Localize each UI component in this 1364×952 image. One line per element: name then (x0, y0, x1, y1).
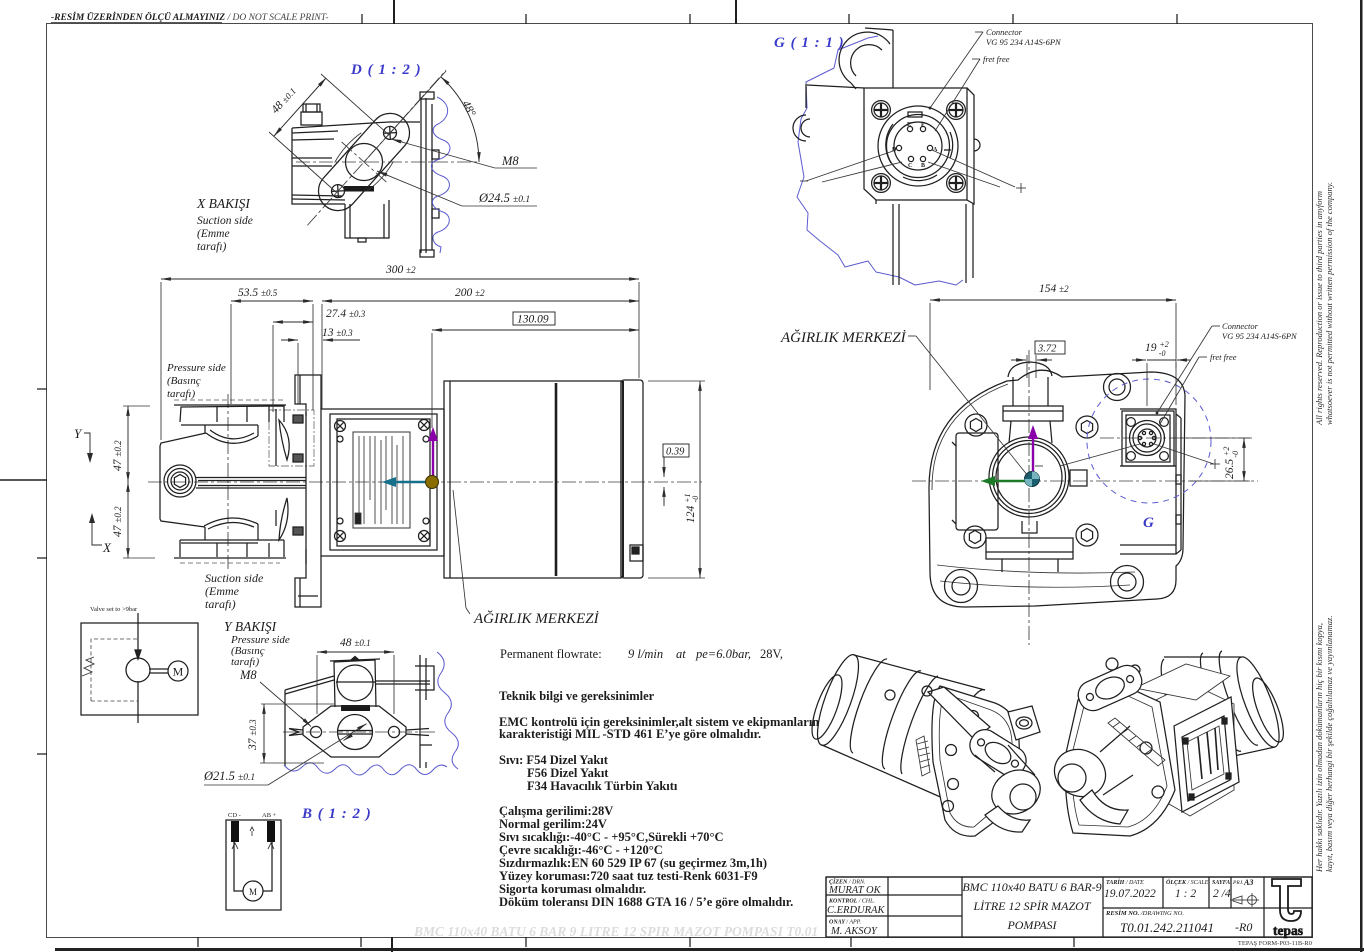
svg-text:47 ±0.2: 47 ±0.2 (112, 506, 124, 537)
svg-text:karakteristiği MIL -STD 461 E’: karakteristiği MIL -STD 461 E’ye göre ol… (499, 727, 761, 741)
svg-text:Y BAKIŞI: Y BAKIŞI (224, 619, 278, 634)
svg-text:M. AKSOY: M. AKSOY (830, 926, 878, 937)
svg-text:SAYFA: SAYFA (1212, 880, 1230, 886)
svg-text:M8: M8 (239, 668, 257, 682)
svg-text:POMPASI: POMPASI (1006, 918, 1057, 932)
svg-text:ONAY / APP.: ONAY / APP. (829, 920, 861, 926)
svg-text:BMC 110x40 BATU 6 BAR-9: BMC 110x40 BATU 6 BAR-9 (962, 880, 1101, 894)
svg-text:fret free: fret free (1210, 352, 1237, 362)
svg-text:(Emme: (Emme (205, 584, 240, 598)
svg-text:300 ±2: 300 ±2 (385, 264, 416, 276)
svg-text:TEPAŞ FORM-P03-11B-R0: TEPAŞ FORM-P03-11B-R0 (1238, 940, 1312, 947)
svg-text:3.72: 3.72 (1037, 344, 1057, 355)
svg-text:F: F (921, 122, 925, 128)
svg-text:A3: A3 (1243, 878, 1253, 887)
svg-text:28V,: 28V, (760, 647, 783, 661)
svg-text:AĞIRLIK MERKEZİ: AĞIRLIK MERKEZİ (473, 610, 600, 627)
svg-text:C.ERDURAK: C.ERDURAK (827, 905, 885, 916)
svg-text:Normal gerilim:24V: Normal gerilim:24V (499, 817, 607, 831)
svg-text:kayıt, basım veya diğer herhan: kayıt, basım veya diğer herhangi bir şek… (1324, 616, 1334, 872)
svg-text:TARİH / DATE: TARİH / DATE (1106, 878, 1144, 886)
svg-text:27.4 ±0.3: 27.4 ±0.3 (326, 308, 366, 320)
svg-text:13 ±0.3: 13 ±0.3 (322, 327, 353, 339)
svg-text:(Emme: (Emme (197, 228, 230, 240)
svg-text:M: M (173, 665, 184, 679)
svg-text:Valve set to >9bar: Valve set to >9bar (90, 606, 138, 613)
svg-text:at: at (676, 647, 686, 661)
svg-text:tarafı): tarafı) (197, 241, 227, 253)
svg-text:(Basınç: (Basınç (167, 375, 201, 387)
svg-text:D ( 1 : 2 ): D ( 1 : 2 ) (350, 62, 422, 78)
svg-text:Connector: Connector (986, 27, 1023, 37)
svg-text:Çalışma gerilimi:28V: Çalışma gerilimi:28V (499, 804, 613, 818)
svg-text:130.09: 130.09 (517, 314, 549, 326)
svg-text:Permanent flowrate:: Permanent flowrate: (500, 647, 602, 661)
svg-text:37 ±0.3: 37 ±0.3 (247, 719, 259, 751)
svg-text:E: E (907, 122, 911, 128)
svg-text:T0.01.242.211041: T0.01.242.211041 (1120, 920, 1214, 935)
svg-text:VG 95 234 A14S-6PN: VG 95 234 A14S-6PN (1222, 331, 1298, 341)
svg-text:Sızdırmazlık:EN 60 529 IP 67 (: Sızdırmazlık:EN 60 529 IP 67 (su geçirme… (499, 856, 767, 870)
svg-text:ÖLÇEK / SCALE: ÖLÇEK / SCALE (1166, 879, 1209, 886)
svg-text:47 ±0.2: 47 ±0.2 (112, 440, 124, 471)
svg-text:tepas: tepas (1273, 923, 1303, 938)
svg-text:19.07.2022: 19.07.2022 (1104, 888, 1156, 900)
svg-text:whatsoever is not permitted wi: whatsoever is not permitted without writ… (1324, 182, 1334, 425)
svg-text:B ( 1 : 2 ): B ( 1 : 2 ) (301, 806, 372, 822)
svg-text:VG 95 234 A14S-6PN: VG 95 234 A14S-6PN (986, 37, 1062, 47)
svg-text:G: G (1143, 515, 1154, 531)
svg-text:BMC 110x40 BATU 6 BAR 9 LITRE: BMC 110x40 BATU 6 BAR 9 LITRE 12 SPIR MA… (413, 924, 818, 939)
svg-text:-R0: -R0 (1235, 920, 1252, 934)
svg-text:PRJ.: PRJ. (1232, 880, 1244, 886)
svg-text:X BAKIŞI: X BAKIŞI (196, 196, 251, 211)
svg-text:Pressure side: Pressure side (166, 362, 226, 374)
svg-text:M: M (249, 887, 257, 897)
svg-text:F34 Havacılık Türbin Yakıtı: F34 Havacılık Türbin Yakıtı (527, 779, 678, 793)
svg-text:CD -: CD - (228, 812, 241, 819)
svg-text:X: X (102, 540, 112, 555)
svg-text:D: D (892, 147, 897, 153)
svg-text:154 ±2: 154 ±2 (1039, 283, 1069, 295)
svg-text:Suction side: Suction side (197, 215, 253, 227)
svg-text:pe=6.0bar,: pe=6.0bar, (695, 647, 751, 661)
svg-text:Teknik bilgi ve gereksinimler: Teknik bilgi ve gereksinimler (499, 689, 655, 703)
svg-text:C: C (908, 163, 912, 169)
svg-text:Suction side: Suction side (205, 571, 264, 585)
svg-text:200 ±2: 200 ±2 (455, 287, 485, 299)
svg-text:Çevre sıcaklığı:-46°C - +120: Çevre sıcaklığı:-46°C - +120°C (499, 843, 663, 857)
svg-text:AB +: AB + (262, 812, 277, 819)
svg-text:KONTROL / CHL.: KONTROL / CHL. (828, 899, 875, 905)
svg-text:2 /4: 2 /4 (1213, 888, 1231, 900)
svg-text:Sıvı: F54 Dizel Yakıt: Sıvı: F54 Dizel Yakıt (499, 753, 609, 767)
svg-text:53.5 ±0.5: 53.5 ±0.5 (238, 287, 278, 299)
svg-text:Döküm toleransı DIN 1688 GTA 1: Döküm toleransı DIN 1688 GTA 16 / 5’e gö… (499, 895, 793, 909)
svg-text:B: B (921, 163, 925, 169)
svg-text:All rights reserved. Reproduct: All rights reserved. Reproduction or iss… (1314, 191, 1324, 426)
svg-text:1 : 2: 1 : 2 (1175, 888, 1196, 900)
svg-text:M8: M8 (501, 154, 519, 168)
svg-text:48 ±0.1: 48 ±0.1 (340, 637, 371, 649)
svg-text:Yüzey koruması:720 saat tuz te: Yüzey koruması:720 saat tuz testi-Renk 6… (499, 869, 758, 883)
svg-text:AĞIRLIK MERKEZİ: AĞIRLIK MERKEZİ (780, 329, 907, 346)
svg-text:Her hakkı saklıdır. Yazılı iz: Her hakkı saklıdır. Yazılı izin olmadan … (1314, 623, 1324, 873)
svg-text:tarafı): tarafı) (231, 656, 259, 668)
svg-text:Sıvı sıcaklığı:-40°C - +95°C: Sıvı sıcaklığı:-40°C - +95°C,Sürekli +70… (499, 830, 724, 844)
svg-text:LİTRE 12 SPİR MAZOT: LİTRE 12 SPİR MAZOT (973, 899, 1092, 913)
svg-text:F56 Dizel Yakıt: F56 Dizel Yakıt (527, 766, 609, 780)
svg-text:tarafı): tarafı) (167, 388, 195, 400)
svg-text:MURAT OK: MURAT OK (828, 885, 882, 896)
svg-text:G ( 1 : 1 ): G ( 1 : 1 ) (774, 35, 845, 51)
svg-text:9 l/min: 9 l/min (628, 647, 663, 661)
svg-text:fret free: fret free (983, 54, 1010, 64)
svg-text:tarafı): tarafı) (205, 597, 236, 611)
svg-text:0.39: 0.39 (666, 447, 685, 458)
svg-text:Sigorta koruması olmalıdır.: Sigorta koruması olmalıdır. (499, 882, 646, 896)
svg-text:RESİM NO. /DRAWING NO.: RESİM NO. /DRAWING NO. (1105, 909, 1184, 917)
svg-text:Connector: Connector (1222, 321, 1259, 331)
